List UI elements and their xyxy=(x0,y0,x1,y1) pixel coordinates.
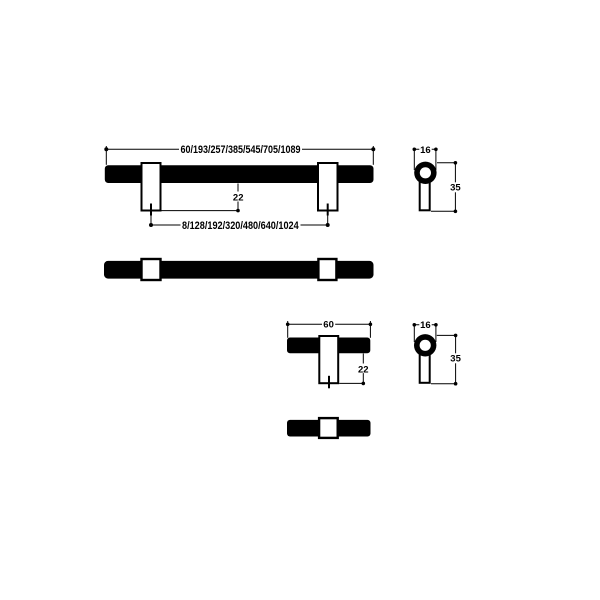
svg-text:8/128/192/320/480/640/1024: 8/128/192/320/480/640/1024 xyxy=(182,220,299,232)
svg-text:22: 22 xyxy=(358,364,369,375)
svg-text:60: 60 xyxy=(323,319,334,330)
svg-text:16: 16 xyxy=(420,145,431,156)
svg-text:60/193/257/385/545/705/1089: 60/193/257/385/545/705/1089 xyxy=(181,144,301,156)
svg-text:35: 35 xyxy=(450,183,461,194)
svg-text:35: 35 xyxy=(450,354,461,365)
svg-text:22: 22 xyxy=(233,192,244,203)
svg-text:16: 16 xyxy=(420,320,431,331)
